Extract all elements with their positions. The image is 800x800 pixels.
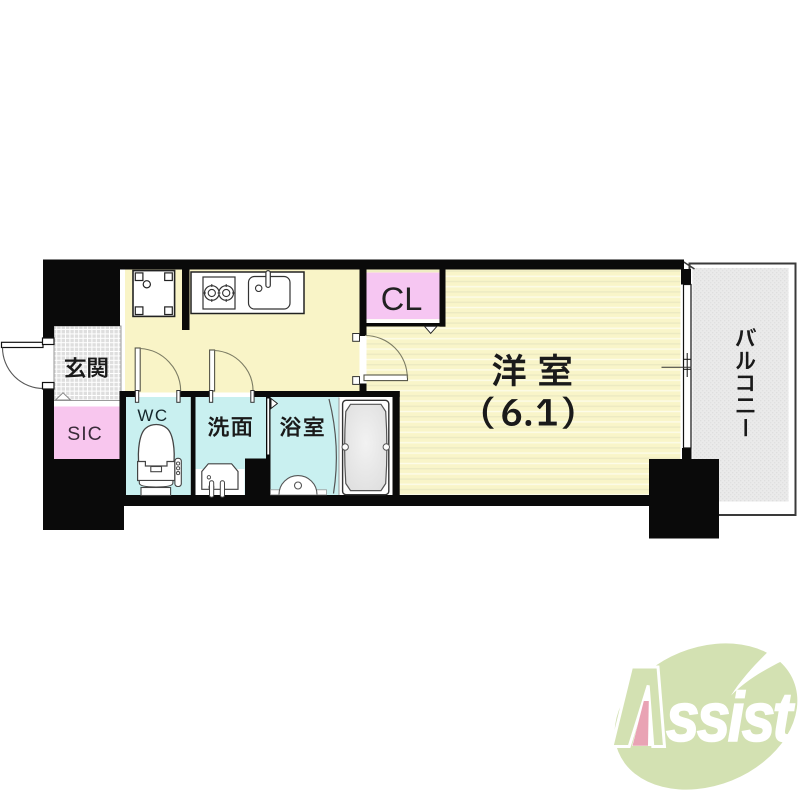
svg-text:WC: WC xyxy=(137,406,168,425)
svg-text:ssist: ssist xyxy=(666,678,795,756)
svg-text:CL: CL xyxy=(381,281,423,317)
svg-text:SIC: SIC xyxy=(67,423,103,445)
